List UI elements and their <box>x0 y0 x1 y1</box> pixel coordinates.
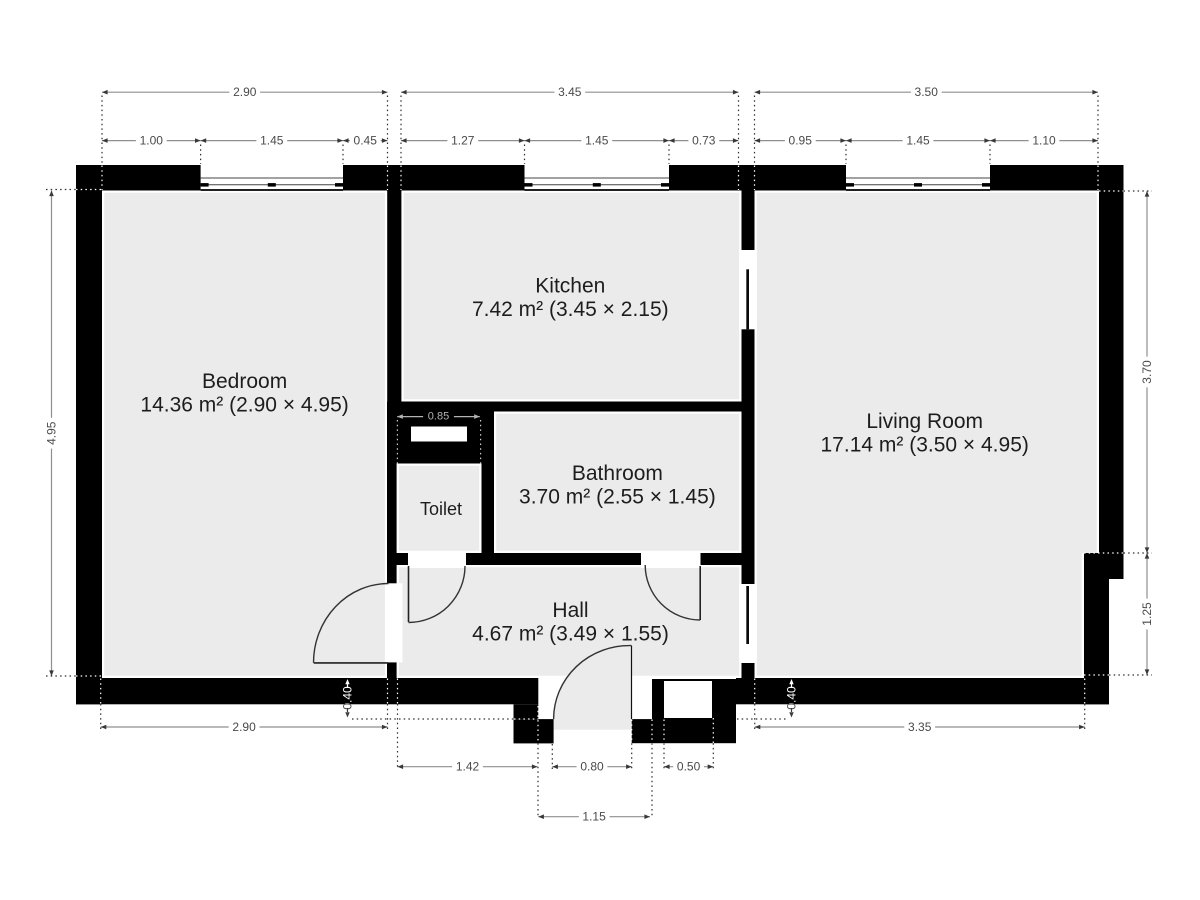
svg-text:0.85: 0.85 <box>428 411 449 423</box>
svg-text:1.45: 1.45 <box>906 134 930 148</box>
svg-text:Hall: Hall <box>552 599 588 622</box>
svg-text:1.45: 1.45 <box>585 134 609 148</box>
svg-text:4.95: 4.95 <box>45 421 59 445</box>
svg-text:1.42: 1.42 <box>456 760 480 774</box>
svg-text:3.45: 3.45 <box>558 85 582 99</box>
svg-text:2.90: 2.90 <box>232 720 256 734</box>
svg-text:3.70: 3.70 <box>1140 360 1154 384</box>
svg-text:2.90: 2.90 <box>233 85 257 99</box>
svg-text:7.42 m² (3.45 × 2.15): 7.42 m² (3.45 × 2.15) <box>472 298 669 321</box>
svg-text:1.10: 1.10 <box>1032 134 1056 148</box>
svg-text:0.95: 0.95 <box>789 134 813 148</box>
svg-text:17.14 m² (3.50 × 4.95): 17.14 m² (3.50 × 4.95) <box>821 433 1029 456</box>
svg-text:0.50: 0.50 <box>677 760 701 774</box>
svg-text:Toilet: Toilet <box>420 499 462 519</box>
svg-text:3.50: 3.50 <box>915 85 939 99</box>
svg-text:0.45: 0.45 <box>354 134 378 148</box>
svg-text:4.67 m² (3.49 × 1.55): 4.67 m² (3.49 × 1.55) <box>472 623 669 646</box>
svg-text:Kitchen: Kitchen <box>535 275 605 298</box>
svg-text:3.35: 3.35 <box>908 720 932 734</box>
svg-text:0.73: 0.73 <box>692 134 716 148</box>
svg-text:Bathroom: Bathroom <box>572 462 663 485</box>
svg-text:1.45: 1.45 <box>260 134 284 148</box>
svg-text:0.80: 0.80 <box>580 760 604 774</box>
svg-text:1.27: 1.27 <box>451 134 475 148</box>
svg-text:Living Room: Living Room <box>866 410 983 433</box>
svg-text:14.36 m² (2.90 × 4.95): 14.36 m² (2.90 × 4.95) <box>140 394 348 417</box>
svg-text:1.15: 1.15 <box>582 810 606 824</box>
svg-text:1.25: 1.25 <box>1140 602 1154 626</box>
svg-text:1.00: 1.00 <box>140 134 164 148</box>
svg-text:Bedroom: Bedroom <box>202 370 287 393</box>
svg-text:3.70 m² (2.55 × 1.45): 3.70 m² (2.55 × 1.45) <box>519 485 716 508</box>
